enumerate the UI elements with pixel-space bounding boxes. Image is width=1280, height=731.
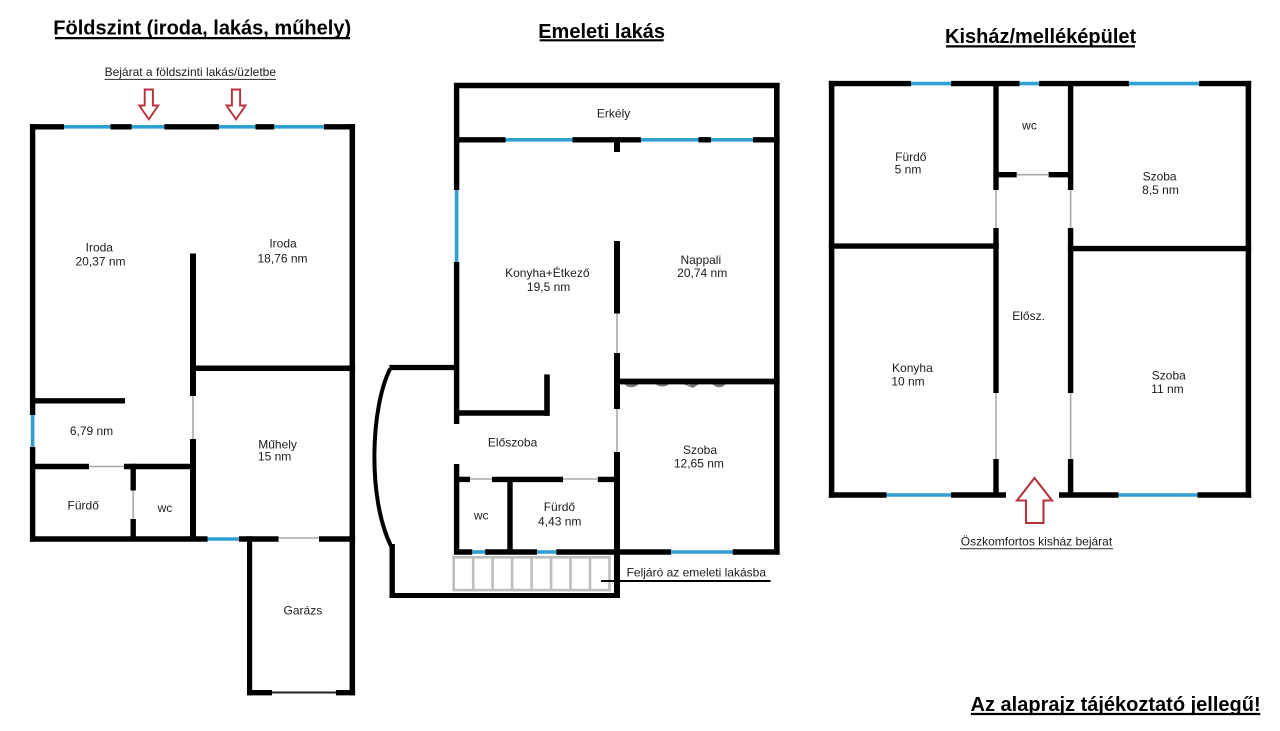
svg-text:Iroda: Iroda [269, 237, 297, 251]
svg-text:4,43 nm: 4,43 nm [538, 515, 581, 529]
svg-text:Előszoba: Előszoba [488, 435, 538, 449]
svg-text:Elősz.: Elősz. [1012, 309, 1045, 323]
svg-text:20,74 nm: 20,74 nm [677, 266, 727, 280]
svg-text:6,79 nm: 6,79 nm [70, 424, 113, 438]
svg-text:Szoba: Szoba [1143, 170, 1177, 184]
svg-text:Szoba: Szoba [1152, 368, 1186, 382]
svg-text:Erkély: Erkély [597, 106, 630, 120]
svg-text:Feljáró az emeleti lakásba: Feljáró az emeleti lakásba [627, 566, 767, 580]
svg-text:11 nm: 11 nm [1151, 382, 1183, 396]
svg-text:Fürdő: Fürdő [68, 499, 100, 513]
svg-text:10 nm: 10 nm [891, 375, 924, 389]
svg-text:Fürdő: Fürdő [544, 500, 576, 514]
svg-text:12,65 nm: 12,65 nm [674, 456, 724, 470]
svg-text:Konyha+Étkező: Konyha+Étkező [505, 265, 590, 280]
svg-text:18,76 nm: 18,76 nm [257, 252, 307, 266]
svg-text:Iroda: Iroda [86, 241, 114, 255]
svg-text:Az alaprajz tájékoztató jelleg: Az alaprajz tájékoztató jellegű! [971, 694, 1261, 716]
svg-text:wc: wc [1021, 118, 1037, 132]
svg-text:8,5 nm: 8,5 nm [1142, 183, 1179, 197]
svg-text:5 nm: 5 nm [895, 163, 922, 177]
svg-text:20,37 nm: 20,37 nm [75, 254, 125, 268]
svg-text:Garázs: Garázs [284, 604, 323, 618]
svg-text:Földszint (iroda, lakás, műhel: Földszint (iroda, lakás, műhely) [53, 18, 351, 40]
svg-text:15 nm: 15 nm [258, 450, 291, 464]
svg-text:Szoba: Szoba [683, 443, 717, 457]
svg-text:19,5 nm: 19,5 nm [527, 280, 570, 294]
svg-text:Nappali: Nappali [680, 253, 721, 267]
svg-text:Öszkomfortos kisház bejárat: Öszkomfortos kisház bejárat [961, 535, 1113, 549]
svg-text:Bejárat a földszinti lakás/üzl: Bejárat a földszinti lakás/üzletbe [105, 65, 277, 79]
svg-text:Kisház/melléképület: Kisház/melléképület [945, 26, 1137, 48]
svg-text:wc: wc [157, 501, 173, 515]
svg-text:Konyha: Konyha [892, 361, 933, 375]
svg-text:wc: wc [473, 509, 489, 523]
